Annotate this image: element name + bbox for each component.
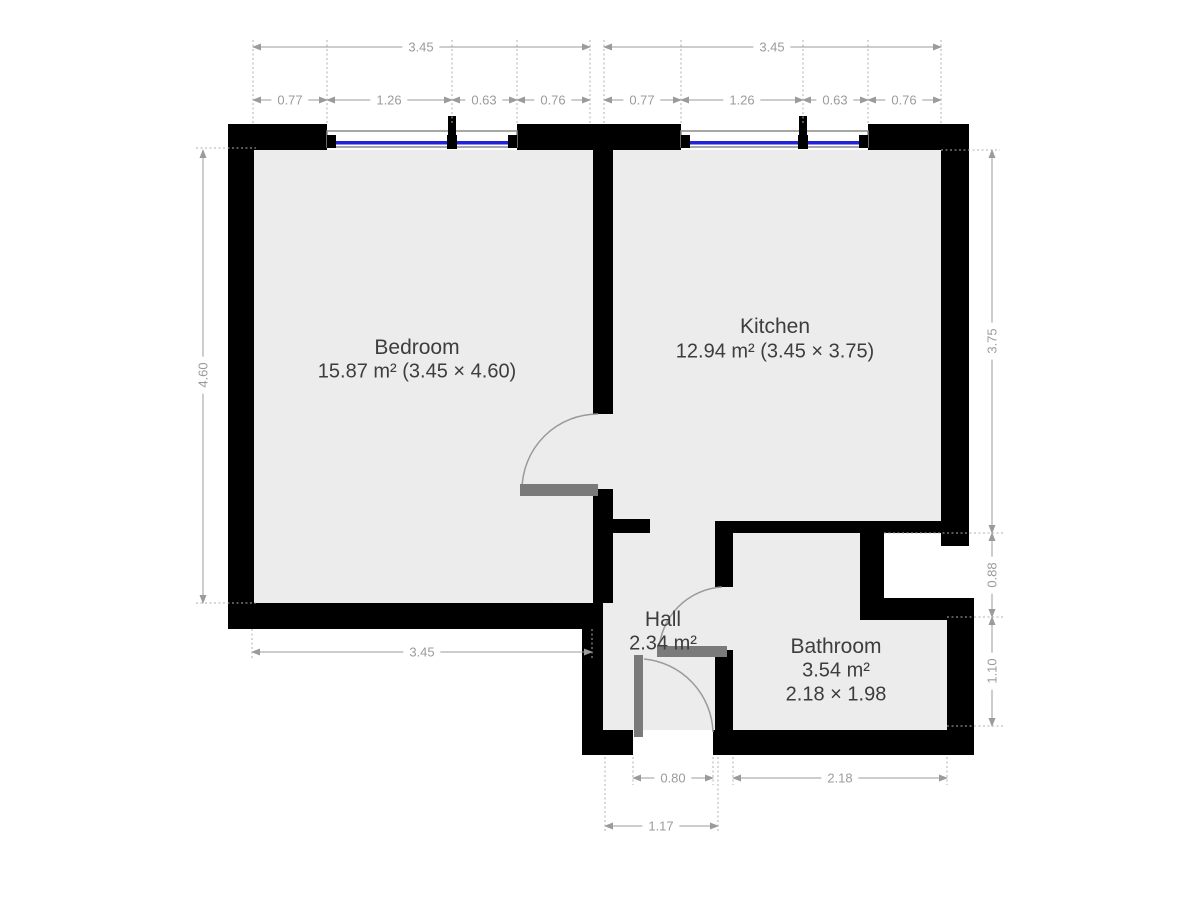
dim-bottom-door: 0.80 [654,771,691,786]
dim-seg: 1.26 [370,93,407,108]
kitchen-label: Kitchen [740,315,810,339]
floor-plan-drawing [0,0,1200,900]
hall-label: Hall [645,608,681,632]
dim-seg: 0.63 [465,93,502,108]
bedroom-area: 15.87 m² (3.45 × 4.60) [318,361,516,384]
floor-plan: Bedroom 15.87 m² (3.45 × 4.60) Kitchen 1… [0,0,1200,900]
bathroom-label: Bathroom [790,635,881,659]
hall-area: 2.34 m² [629,633,697,656]
dim-right-upper: 3.75 [985,322,1000,359]
bedroom-doorway-floor [593,414,613,489]
bedroom-window [327,116,517,150]
dim-seg: 1.26 [723,93,760,108]
bathroom-doorway-floor [715,587,733,650]
entrance-door-leaf [634,655,643,737]
dim-top-left-total: 3.45 [402,40,439,55]
dim-seg: 0.77 [271,93,308,108]
dim-top-right-total: 3.45 [753,40,790,55]
kitchen-area: 12.94 m² (3.45 × 3.75) [676,341,874,364]
dim-bottom-bedroom: 3.45 [403,645,440,660]
bedroom-label: Bedroom [374,336,459,360]
dim-seg: 0.76 [885,93,922,108]
bathroom-size: 2.18 × 1.98 [786,684,887,707]
dim-left-height: 4.60 [196,356,211,393]
bathroom-floor-upper [733,533,860,628]
dim-bottom-hall: 1.17 [642,819,679,834]
window-glass [685,141,864,145]
bedroom-door-leaf [520,484,598,496]
dim-bottom-bathroom: 2.18 [821,771,858,786]
dim-seg: 0.77 [623,93,660,108]
dim-seg: 0.63 [816,93,853,108]
dim-right-middle: 0.88 [985,556,1000,593]
kitchen-window [681,116,868,150]
dim-right-lower: 1.10 [985,652,1000,689]
dim-seg: 0.76 [534,93,571,108]
window-glass [331,141,513,145]
bathroom-area: 3.54 m² [802,660,870,683]
